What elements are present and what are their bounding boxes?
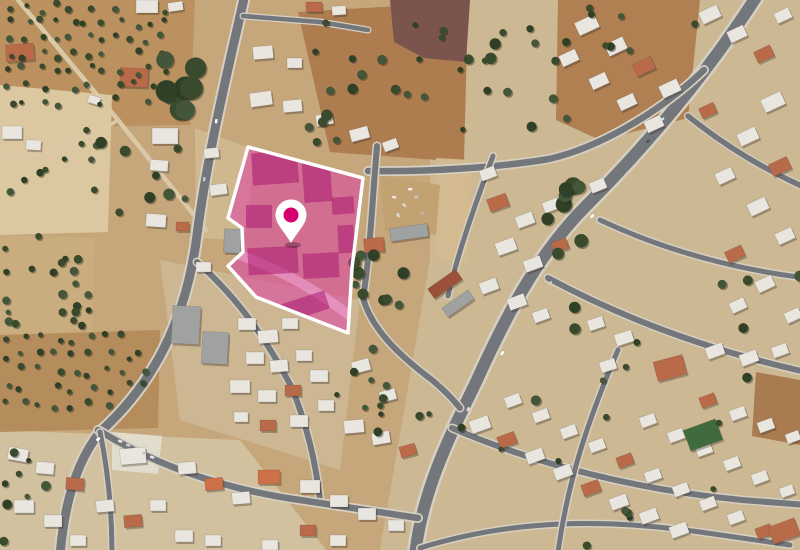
pin-shadow [285, 242, 301, 248]
satellite-map-canvas[interactable] [0, 0, 800, 550]
pin-dot-icon [284, 208, 299, 223]
satellite-map-viewport[interactable] [0, 0, 800, 550]
